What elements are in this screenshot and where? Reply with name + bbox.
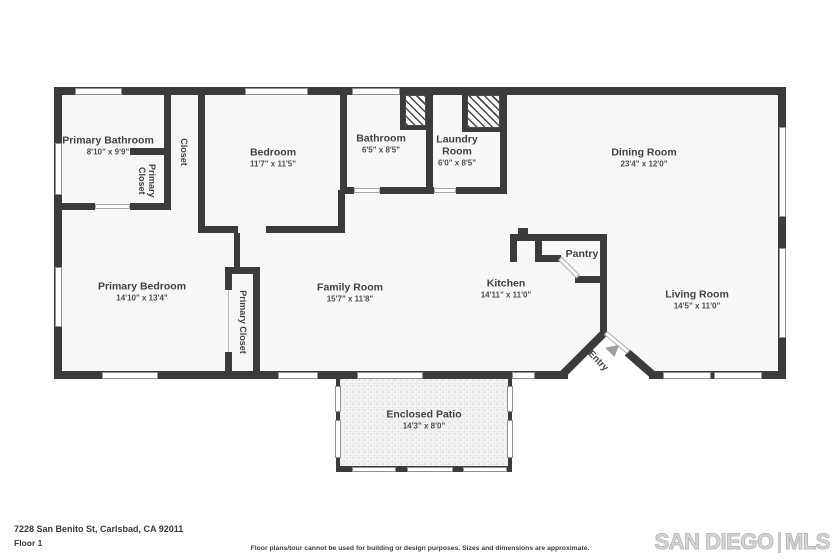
window — [512, 372, 535, 379]
window — [102, 372, 158, 379]
room-dims: 14'5" x 11'0" — [665, 302, 729, 312]
patio-window — [507, 386, 513, 412]
wall — [500, 95, 507, 194]
room-label-pantry: Pantry — [566, 248, 599, 260]
room-label-laundry-room: Laundry Room 6'0" x 8'5" — [428, 134, 486, 169]
room-label-bathroom: Bathroom 6'5" x 8'5" — [356, 133, 406, 156]
wall — [253, 274, 260, 379]
room-label-bedroom: Bedroom 11'7" x 11'5" — [250, 147, 296, 170]
window — [278, 372, 318, 379]
room-name: Enclosed Patio — [386, 409, 461, 421]
room-label-kitchen: Kitchen 14'11" x 11'0" — [481, 278, 532, 301]
window — [714, 372, 762, 379]
room-name: Kitchen — [481, 278, 532, 290]
door — [354, 188, 380, 193]
patio-window — [407, 467, 453, 472]
patio-window — [507, 420, 513, 458]
window — [245, 88, 308, 95]
room-name: Living Room — [665, 289, 729, 301]
room-name: Bedroom — [250, 147, 296, 159]
floor-plan-page: Primary Bathroom 8'10" x 9'9" Closet Pri… — [0, 0, 840, 560]
room-dims: 15'7" x 11'8" — [317, 295, 383, 305]
room-dims: 11'7" x 11'5" — [250, 160, 296, 170]
wall — [198, 226, 238, 233]
door — [95, 204, 130, 209]
logo-text-primary: SAN DIEGO — [655, 530, 774, 554]
closet-door-line — [228, 290, 229, 352]
room-name: Family Room — [317, 282, 383, 294]
room-dims: 23'4" x 12'0" — [611, 160, 676, 170]
wall — [338, 190, 345, 233]
room-label-dining-room: Dining Room 23'4" x 12'0" — [611, 147, 676, 170]
window — [357, 372, 423, 379]
wall — [54, 203, 95, 210]
room-label-family-room: Family Room 15'7" x 11'8" — [317, 282, 383, 305]
room-dims: 6'0" x 8'5" — [428, 159, 486, 169]
wall — [535, 255, 561, 262]
wall — [266, 226, 345, 233]
patio-window — [335, 420, 341, 458]
wall — [510, 234, 517, 262]
wall — [225, 274, 232, 290]
window — [352, 88, 400, 95]
patio-window — [463, 467, 507, 472]
wall — [225, 267, 260, 274]
door — [434, 188, 456, 193]
floor-number: Floor 1 — [14, 538, 42, 548]
wall — [54, 87, 786, 95]
room-label-living-room: Living Room 14'5" x 11'0" — [665, 289, 729, 312]
window — [55, 143, 62, 195]
wall — [340, 95, 347, 193]
room-name: Laundry Room — [428, 134, 486, 158]
disclaimer-text: Floor plans/tour cannot be used for buil… — [251, 545, 590, 552]
wall — [225, 352, 232, 379]
window — [663, 372, 711, 379]
wall — [510, 234, 607, 241]
wall — [54, 87, 62, 379]
window — [779, 248, 786, 338]
wall — [518, 228, 528, 234]
san-diego-mls-logo: SAN DIEGO MLS — [655, 530, 830, 554]
property-address: 7228 San Benito St, Carlsbad, CA 92011 — [14, 524, 183, 534]
patio-window — [352, 467, 396, 472]
room-dims: 14'11" x 11'0" — [481, 291, 532, 301]
room-dims: 6'5" x 8'5" — [356, 146, 406, 156]
room-label-closet: Closet — [179, 138, 189, 166]
window — [75, 88, 122, 95]
logo-divider — [778, 532, 782, 553]
room-name: Dining Room — [611, 147, 676, 159]
utility-hatch — [467, 95, 500, 128]
window — [55, 267, 62, 327]
wall — [426, 187, 434, 194]
wall — [234, 233, 240, 269]
room-label-enclosed-patio: Enclosed Patio 14'3" x 8'0" — [386, 409, 461, 432]
room-label-primary-bedroom: Primary Bedroom 14'10" x 13'4" — [98, 281, 186, 304]
room-label-primary-closet-tall: Primary Closet — [238, 290, 248, 354]
window — [779, 127, 786, 217]
patio-window — [335, 386, 341, 412]
wall — [198, 95, 205, 232]
room-name: Pantry — [566, 248, 599, 260]
wall — [340, 187, 354, 194]
room-dims: 14'10" x 13'4" — [98, 294, 186, 304]
room-name: Primary Bathroom — [62, 135, 154, 147]
utility-hatch — [405, 95, 426, 126]
wall — [600, 234, 607, 333]
room-label-primary-closet-small: Primary Closet — [137, 153, 157, 209]
room-name: Bathroom — [356, 133, 406, 145]
room-name: Primary Bedroom — [98, 281, 186, 293]
logo-text-secondary: MLS — [785, 530, 830, 554]
room-dims: 14'3" x 8'0" — [386, 422, 461, 432]
